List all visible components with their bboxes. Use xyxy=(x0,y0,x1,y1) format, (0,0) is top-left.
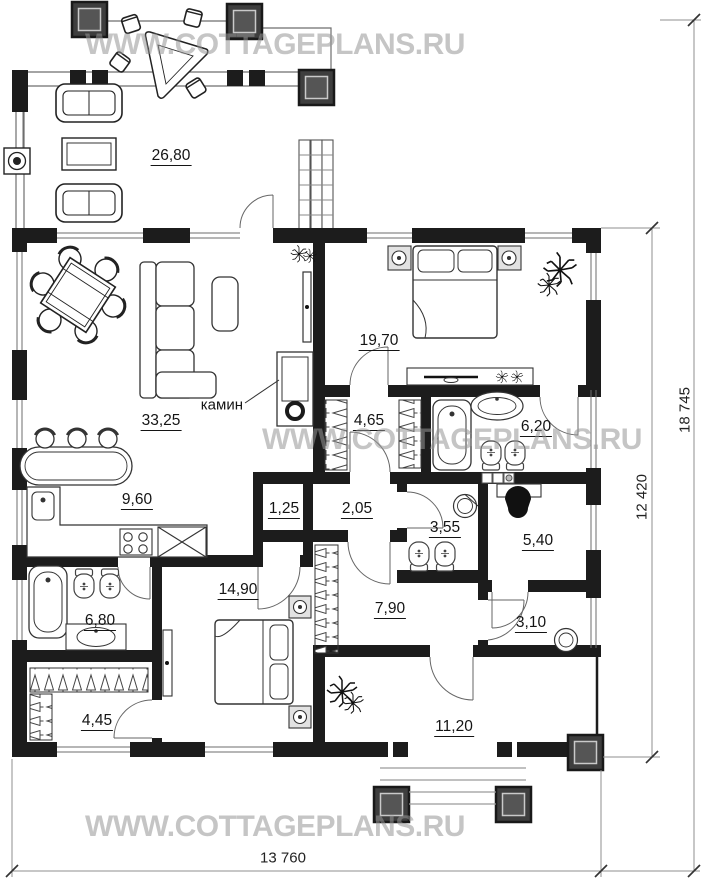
bathroom2-fixtures xyxy=(29,566,126,650)
sink-icon xyxy=(32,492,54,520)
living-room-furniture xyxy=(28,245,317,426)
bar-counter-icon xyxy=(20,447,132,485)
terrace-side-steps xyxy=(299,140,333,232)
kitchen-furniture xyxy=(20,429,207,557)
tv-icon xyxy=(303,272,311,342)
plant-icon xyxy=(538,273,561,296)
room-label-hallway: 2,05 xyxy=(341,500,373,518)
fridge-icon xyxy=(158,527,206,557)
bedroom2-furniture xyxy=(163,596,311,728)
sofa-icon xyxy=(56,184,122,222)
dining-table-icon xyxy=(28,245,128,345)
bedroom1-furniture xyxy=(388,246,577,385)
vent-boxes xyxy=(482,473,514,483)
room-label-bathroom-2: 6,80 xyxy=(84,612,116,630)
floor-plan-page: 26,8019,7033,254,656,209,601,252,053,555… xyxy=(0,0,714,881)
fireplace-label: камин xyxy=(201,397,243,414)
chair-icon xyxy=(505,486,531,518)
round-sink-icon xyxy=(454,495,477,518)
room-label-pantry: 1,25 xyxy=(268,500,300,518)
toilet-icon xyxy=(74,569,94,598)
watermark-middle: WWW.COTTAGEPLANS.RU xyxy=(262,423,642,457)
room-label-wc: 3,55 xyxy=(429,519,461,537)
bed-icon xyxy=(413,246,497,338)
room-label-porch: 11,20 xyxy=(434,718,474,736)
room-label-vestibule: 3,10 xyxy=(515,614,547,632)
vestibule-fixtures xyxy=(555,629,578,652)
sofa-icon xyxy=(56,84,122,122)
watermark-bottom: WWW.COTTAGEPLANS.RU xyxy=(85,810,465,844)
toilet-icon xyxy=(409,542,429,571)
fireplace-icon xyxy=(277,352,313,426)
bed-icon xyxy=(215,620,293,704)
corner-sofa-icon xyxy=(140,262,238,398)
room-label-wardrobe: 4,45 xyxy=(81,712,113,730)
bathtub-icon xyxy=(29,566,67,638)
study-furniture xyxy=(497,484,541,518)
washbasin-icon xyxy=(471,392,523,420)
room-label-entry-hall: 7,90 xyxy=(374,600,406,618)
room-label-bedroom-2: 14,90 xyxy=(218,581,259,599)
room-label-study: 5,40 xyxy=(522,532,554,550)
watermark-top: WWW.COTTAGEPLANS.RU xyxy=(85,28,465,62)
grill-icon xyxy=(4,148,30,174)
stove-icon xyxy=(120,529,152,555)
room-label-kitchen: 9,60 xyxy=(121,491,153,509)
tv-icon xyxy=(163,630,172,696)
dresser-tv-icon xyxy=(407,368,533,385)
room-label-bedroom-1: 19,70 xyxy=(359,332,400,350)
fireplace-leader-line xyxy=(245,380,279,403)
bidet-icon xyxy=(435,542,455,571)
plant-icon xyxy=(291,245,308,262)
boiler-icon xyxy=(555,629,578,652)
room-label-living-room: 33,25 xyxy=(141,412,182,430)
room-label-terrace: 26,80 xyxy=(151,147,192,165)
dimension-right-outer: 18 745 xyxy=(677,387,694,433)
bidet-icon xyxy=(100,569,120,598)
dimension-right-inner: 12 420 xyxy=(634,474,651,520)
dimension-bottom: 13 760 xyxy=(260,850,306,867)
